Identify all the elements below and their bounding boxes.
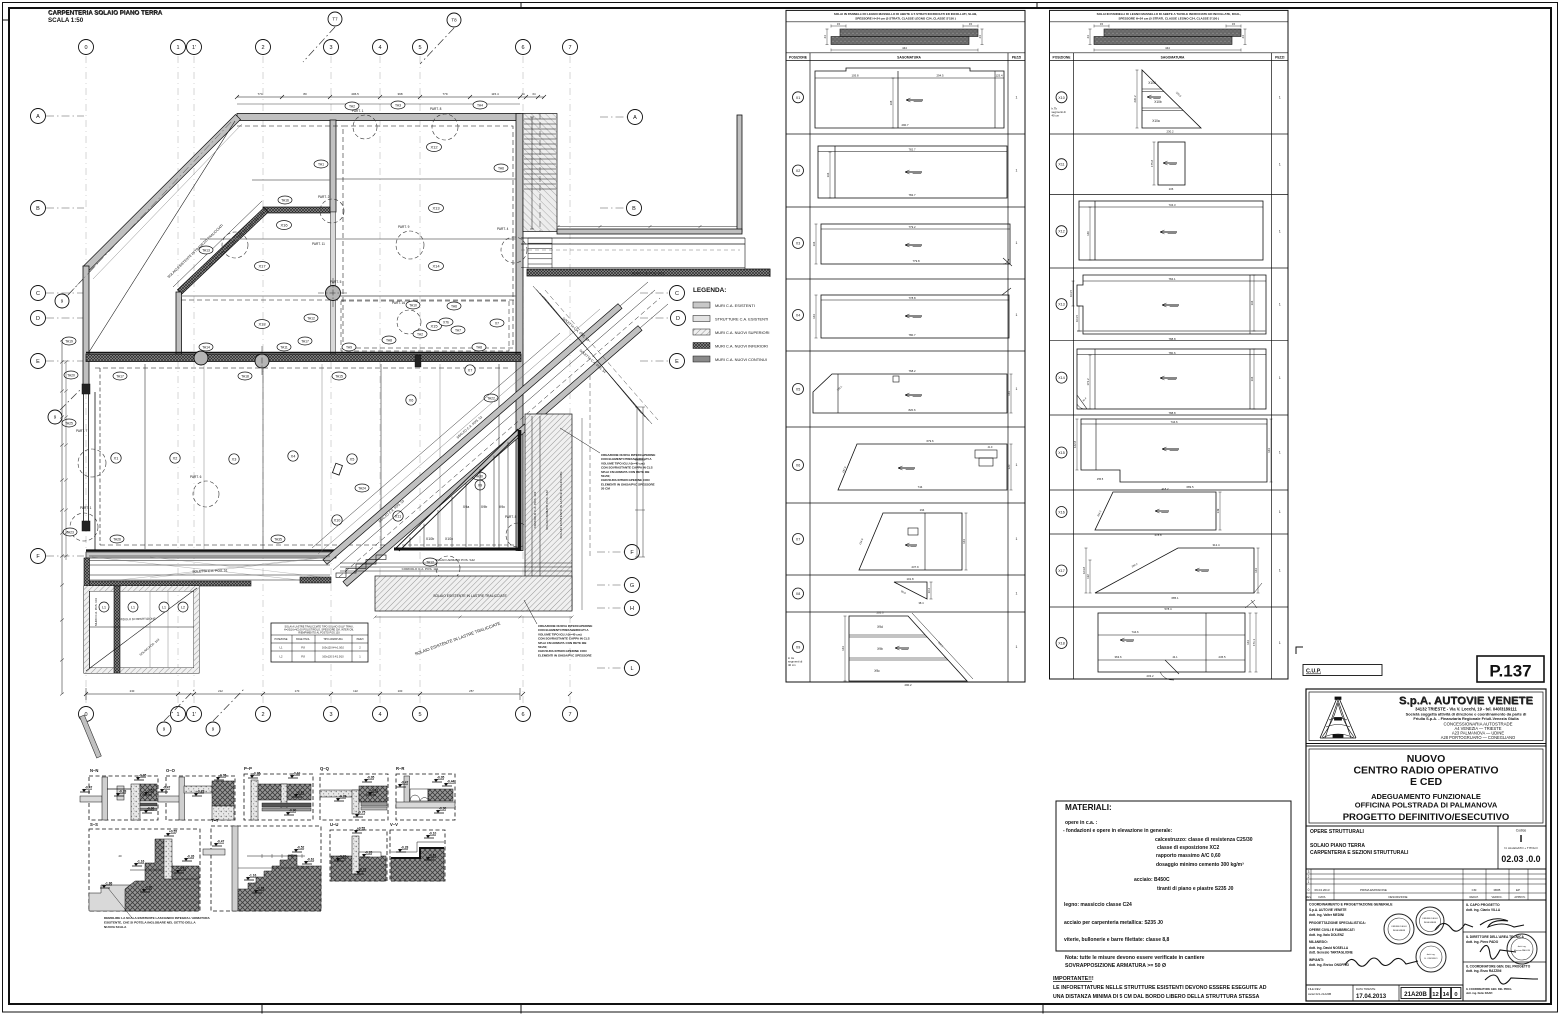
svg-text:TA25: TA25 — [65, 421, 73, 425]
svg-text:160x120 H4+1.0/10: 160x120 H4+1.0/10 — [322, 647, 345, 650]
svg-text:0: 0 — [1308, 888, 1310, 892]
svg-text:1: 1 — [1308, 880, 1310, 884]
svg-text:406.5: 406.5 — [351, 92, 359, 96]
svg-text:Q–Q: Q–Q — [320, 766, 330, 771]
svg-text:1: 1 — [1279, 96, 1281, 100]
svg-text:Maurizio PAULON: Maurizio PAULON — [1514, 949, 1531, 952]
svg-text:X5: X5 — [796, 388, 800, 392]
svg-text:CM: CM — [1472, 888, 1477, 892]
svg-text:SOLAIO PIANO TERRA: SOLAIO PIANO TERRA — [1310, 843, 1365, 849]
svg-text:RIEMPIMENTO AL POSTO POS 103: RIEMPIMENTO AL POSTO POS 103 — [298, 632, 340, 635]
svg-text:H: H — [630, 606, 634, 612]
svg-text:-0.47: -0.47 — [85, 785, 92, 789]
svg-text:774: 774 — [257, 92, 262, 96]
svg-text:tiranti di piano e piastre S23: tiranti di piano e piastre S235 J0 — [1157, 886, 1234, 892]
svg-text:PEZZI: PEZZI — [1275, 55, 1284, 59]
svg-text:7: 7 — [568, 712, 571, 718]
svg-text:1: 1 — [1016, 592, 1018, 596]
svg-text:02.03 .0.0: 02.03 .0.0 — [1501, 854, 1540, 864]
svg-text:X9c: X9c — [499, 505, 505, 509]
svg-text:15: 15 — [837, 22, 841, 26]
svg-text:-0.52: -0.52 — [297, 845, 304, 849]
svg-text:444: 444 — [902, 46, 907, 50]
svg-text:ORDINE DEGLI: ORDINE DEGLI — [1391, 926, 1407, 928]
svg-text:I: I — [1520, 834, 1523, 845]
svg-text:LE INFORETTATURE NELLE STRUTTU: LE INFORETTATURE NELLE STRUTTURE ESISTEN… — [1053, 985, 1267, 991]
svg-text:P.8: P.8 — [301, 655, 305, 659]
svg-text:444: 444 — [1165, 46, 1170, 50]
svg-text:-0.05: -0.05 — [139, 773, 146, 777]
svg-text:-0.26: -0.26 — [187, 854, 194, 858]
svg-text:SOLAIO ARMATO POS. S42: SOLAIO ARMATO POS. S42 — [545, 490, 549, 530]
svg-text:MURI C.A. ESISTENTI: MURI C.A. ESISTENTI — [715, 303, 755, 308]
svg-text:X15: X15 — [430, 323, 438, 328]
svg-text:L1: L1 — [162, 606, 166, 610]
svg-text:+0.55: +0.55 — [357, 826, 365, 830]
svg-text:38.4: 38.4 — [918, 601, 924, 605]
svg-text:-0.10: -0.10 — [429, 831, 436, 835]
svg-text:X10d: X10d — [1148, 81, 1156, 85]
svg-text:TA8: TA8 — [386, 338, 392, 342]
svg-text:149: 149 — [1216, 508, 1220, 513]
svg-text:O–O: O–O — [166, 768, 176, 773]
svg-text:V–V: V–V — [390, 822, 398, 827]
svg-text:1: 1 — [1016, 387, 1018, 391]
svg-text:64: 64 — [532, 92, 536, 96]
svg-text:S.p.A. AUTOVIE VENETE: S.p.A. AUTOVIE VENETE — [1309, 908, 1347, 912]
svg-text:-0.47: -0.47 — [401, 780, 408, 784]
svg-text:171.1: 171.1 — [1252, 639, 1256, 646]
svg-text:TA2: TA2 — [349, 104, 355, 108]
svg-text:-0.28: -0.28 — [401, 845, 408, 849]
svg-text:MURI C.A. NUOVI SUPERIORI: MURI C.A. NUOVI SUPERIORI — [715, 330, 769, 335]
svg-text:164: 164 — [1246, 640, 1250, 645]
svg-text:4: 4 — [378, 45, 381, 51]
svg-text:164: 164 — [812, 241, 816, 246]
svg-text:SAGOMATURA: SAGOMATURA — [1161, 55, 1185, 59]
svg-text:257: 257 — [469, 689, 474, 693]
svg-text:E CED: E CED — [1410, 776, 1443, 788]
svg-text:MDB: MDB — [1494, 888, 1501, 892]
svg-text:PART. 7: PART. 7 — [76, 429, 88, 433]
svg-text:A: A — [633, 115, 637, 121]
svg-text:TA13: TA13 — [202, 248, 210, 252]
svg-text:132: 132 — [1086, 574, 1090, 579]
svg-text:TA20: TA20 — [67, 373, 75, 377]
svg-text:U–U: U–U — [330, 822, 338, 827]
svg-text:205.3: 205.3 — [877, 611, 884, 615]
svg-text:E: E — [36, 359, 40, 365]
svg-text:X10a: X10a — [1152, 119, 1160, 123]
svg-text:784.1: 784.1 — [1169, 277, 1176, 281]
svg-text:-0.28: -0.28 — [197, 789, 204, 793]
svg-text:203.2: 203.2 — [1147, 674, 1154, 678]
svg-text:15: 15 — [969, 22, 973, 26]
svg-text:X18: X18 — [1058, 642, 1064, 646]
svg-text:E. ONOFRIO: E. ONOFRIO — [1425, 958, 1438, 960]
svg-text:2: 2 — [1308, 875, 1310, 879]
svg-text:G: G — [630, 583, 634, 589]
svg-text:1: 1 — [1016, 463, 1018, 467]
svg-text:X10b: X10b — [1154, 100, 1162, 104]
svg-text:1: 1 — [1279, 451, 1281, 455]
svg-text:PROGETTAZIONE SPECIALISTICA:: PROGETTAZIONE SPECIALISTICA: — [1309, 921, 1366, 925]
svg-text:788.8: 788.8 — [1169, 411, 1176, 415]
svg-text:FILE REV.: FILE REV. — [1308, 987, 1321, 991]
svg-text:DESCRIZIONE: DESCRIZIONE — [1388, 895, 1407, 899]
svg-text:104.5: 104.5 — [1069, 290, 1073, 297]
svg-text:TA23: TA23 — [66, 530, 74, 534]
svg-text:CARPENTERIA SOLAIO PIANO TERRA: CARPENTERIA SOLAIO PIANO TERRA — [48, 10, 163, 17]
svg-text:24: 24 — [823, 35, 827, 39]
svg-text:PART. 11: PART. 11 — [312, 242, 325, 246]
svg-text:X9b: X9b — [877, 647, 883, 651]
svg-text:X7b: X7b — [443, 320, 449, 324]
svg-text:398: 398 — [397, 92, 402, 96]
svg-text:TA4: TA4 — [477, 103, 483, 107]
svg-text:BASE HSOL: BASE HSOL — [296, 638, 310, 641]
svg-text:COORDINAMENTO E PROGETTAZIONE: COORDINAMENTO E PROGETTAZIONE GENERALE — [1309, 903, 1393, 907]
svg-text:NUOVO: NUOVO — [1407, 753, 1446, 765]
svg-text:X11: X11 — [395, 515, 401, 519]
svg-text:dott. ing. Enzo RAZZINI: dott. ing. Enzo RAZZINI — [1466, 969, 1502, 973]
svg-text:Nota: tutte le misure devono e: Nota: tutte le misure devono essere veri… — [1065, 955, 1205, 961]
svg-text:780.6: 780.6 — [1169, 351, 1176, 355]
svg-text:164: 164 — [962, 539, 966, 544]
svg-text:679.6: 679.6 — [927, 439, 934, 443]
svg-text:44: 44 — [521, 92, 525, 96]
svg-text:5: 5 — [418, 45, 421, 51]
svg-text:4: 4 — [378, 712, 381, 718]
svg-text:PROGETTO DEFINITIVO/ESECUTIVO: PROGETTO DEFINITIVO/ESECUTIVO — [1343, 812, 1510, 823]
svg-text:MURO C.A. POS. 104: MURO C.A. POS. 104 — [94, 598, 98, 626]
svg-text:L1: L1 — [131, 606, 135, 610]
svg-text:POSIZIONE: POSIZIONE — [789, 55, 808, 59]
svg-text:1': 1' — [192, 45, 196, 51]
svg-text:09.04.2013: 09.04.2013 — [1314, 888, 1329, 892]
svg-text:N–N: N–N — [90, 768, 98, 773]
svg-text:DATA TRIESTE: DATA TRIESTE — [1356, 987, 1376, 991]
svg-text:744.6: 744.6 — [1171, 420, 1178, 424]
svg-text:INGEGNERI: INGEGNERI — [1393, 930, 1406, 932]
svg-text:TA30: TA30 — [475, 474, 483, 478]
svg-text:788.8: 788.8 — [1169, 337, 1176, 341]
svg-text:N. ALLEGATO + TITOLO: N. ALLEGATO + TITOLO — [1504, 846, 1538, 850]
svg-text:TA19: TA19 — [65, 339, 73, 343]
svg-text:12: 12 — [1432, 992, 1438, 998]
svg-text:dott. ing. David NOSELLA: dott. ing. David NOSELLA — [1309, 946, 1349, 950]
svg-text:237.9: 237.9 — [912, 565, 919, 569]
svg-text:TA1: TA1 — [318, 162, 324, 166]
svg-text:689.5: 689.5 — [1187, 485, 1194, 489]
svg-text:calcestruzzo: classe di resis: calcestruzzo: classe di resistenza C25/3… — [1155, 837, 1253, 843]
svg-text:3: 3 — [329, 712, 332, 718]
svg-text:X10: X10 — [334, 519, 341, 523]
svg-text:P.8: P.8 — [301, 646, 305, 650]
svg-text:X9: X9 — [796, 646, 800, 650]
svg-text:SOLAIO ARMATO POS. S42: SOLAIO ARMATO POS. S42 — [435, 558, 475, 562]
svg-text:P–P: P–P — [244, 766, 252, 771]
svg-text:R–R: R–R — [396, 766, 404, 771]
svg-text:REV.: REV. — [1305, 895, 1311, 899]
svg-text:PART. 4: PART. 4 — [497, 227, 509, 231]
svg-text:TA9: TA9 — [346, 345, 352, 349]
svg-text:105.8: 105.8 — [852, 74, 859, 78]
svg-text:779: 779 — [442, 92, 447, 96]
svg-text:1: 1 — [1279, 302, 1281, 306]
svg-text:TA14: TA14 — [202, 345, 210, 349]
svg-text:104.5: 104.5 — [1075, 315, 1079, 322]
svg-text:X7: X7 — [495, 321, 499, 325]
svg-text:175.8: 175.8 — [1150, 160, 1154, 167]
svg-text:-1.16: -1.16 — [249, 873, 256, 877]
svg-text:X8: X8 — [796, 592, 800, 596]
svg-text:1: 1 — [1016, 313, 1018, 317]
svg-text:TA10: TA10 — [409, 303, 417, 307]
svg-text:40 cm: 40 cm — [788, 663, 796, 667]
svg-text:CORDOLO C.A. POS. 101: CORDOLO C.A. POS. 101 — [402, 567, 439, 571]
svg-text:TA24: TA24 — [358, 486, 366, 490]
svg-text:15: 15 — [1232, 22, 1236, 26]
svg-text:TA6: TA6 — [451, 304, 457, 308]
svg-text:dott. ing. Delio RAZZI: dott. ing. Delio RAZZI — [1466, 991, 1493, 995]
svg-text:782.7: 782.7 — [909, 148, 916, 152]
svg-text:L: L — [630, 666, 633, 672]
svg-text:24: 24 — [978, 35, 982, 39]
svg-text:dott. Genesio TARTAGLIONE: dott. Genesio TARTAGLIONE — [1309, 951, 1353, 955]
svg-text:INGEGNERI: INGEGNERI — [1424, 922, 1437, 924]
svg-text:-0.05: -0.05 — [219, 773, 226, 777]
svg-text:dott. ing. Clanio VILLA: dott. ing. Clanio VILLA — [1466, 908, 1501, 912]
svg-text:X13: X13 — [432, 205, 440, 210]
svg-text:viterie, bullonerie e barre fi: viterie, bullonerie e barre filettate: c… — [1064, 937, 1170, 943]
svg-text:782.7: 782.7 — [909, 193, 916, 197]
svg-text:L1: L1 — [102, 606, 106, 610]
svg-text:768.2: 768.2 — [909, 369, 916, 373]
svg-text:170: 170 — [295, 689, 300, 693]
svg-text:E: E — [675, 359, 679, 365]
svg-text:164: 164 — [1254, 568, 1258, 573]
svg-text:D: D — [676, 316, 680, 322]
svg-text:744: 744 — [918, 485, 923, 489]
svg-text:779.2: 779.2 — [909, 225, 916, 229]
svg-text:20 CM: 20 CM — [601, 487, 610, 491]
svg-text:CARPENTERIA E SEZIONI STRUTTUR: CARPENTERIA E SEZIONI STRUTTURALI — [1310, 850, 1409, 856]
svg-text:173.2: 173.2 — [1086, 378, 1090, 385]
svg-text:125.4: 125.4 — [996, 74, 1003, 78]
svg-text:PART. 6: PART. 6 — [190, 475, 202, 479]
svg-text:T–T: T–T — [211, 818, 219, 823]
svg-text:X14: X14 — [432, 263, 440, 268]
svg-text:1: 1 — [1016, 169, 1018, 173]
svg-text:778.8: 778.8 — [909, 296, 916, 300]
svg-text:opere in c.a. :: opere in c.a. : — [1065, 820, 1098, 826]
svg-text:1: 1 — [1016, 96, 1018, 100]
svg-text:-0.10: -0.10 — [293, 771, 300, 775]
svg-text:P.137: P.137 — [1489, 662, 1531, 681]
svg-text:dott. ing. Italo DOLENZ: dott. ing. Italo DOLENZ — [1309, 933, 1344, 937]
svg-text:Codice: Codice — [1516, 829, 1527, 833]
svg-text:1: 1 — [1279, 229, 1281, 233]
svg-text:rapporto massimo A/C 0,60: rapporto massimo A/C 0,60 — [1156, 853, 1221, 859]
svg-text:STRUTTURE C.A. ESISTENTI: STRUTTURE C.A. ESISTENTI — [715, 316, 768, 321]
svg-text:S–S: S–S — [90, 822, 98, 827]
svg-text:X6: X6 — [796, 464, 800, 468]
svg-text:-0.90: -0.90 — [439, 806, 446, 810]
svg-text:-0.44: -0.44 — [447, 779, 454, 783]
svg-text:21A20B: 21A20B — [1404, 991, 1427, 998]
svg-text:290.2: 290.2 — [905, 683, 912, 687]
svg-text:dott. ing. Piero PADO: dott. ing. Piero PADO — [1466, 940, 1499, 944]
svg-text:MATERIALI:: MATERIALI: — [1065, 803, 1112, 812]
svg-text:-0.73: -0.73 — [359, 867, 366, 871]
svg-text:MURO C.A. POS. W13: MURO C.A. POS. W13 — [632, 272, 665, 276]
svg-text:230: 230 — [130, 689, 135, 693]
svg-text:1: 1 — [1279, 376, 1281, 380]
svg-text:dosaggio minimo cemento 300 kg: dosaggio minimo cemento 300 kg/m³ — [1156, 862, 1244, 868]
svg-text:X7: X7 — [468, 369, 473, 373]
svg-text:168: 168 — [889, 100, 893, 105]
svg-text:6: 6 — [521, 712, 524, 718]
svg-text:TA22: TA22 — [487, 396, 495, 400]
svg-text:230.2: 230.2 — [1167, 130, 1174, 134]
svg-text:-0.75: -0.75 — [358, 810, 365, 814]
svg-text:SOVRAPPOSIZIONE ARMATURA >= 50: SOVRAPPOSIZIONE ARMATURA >= 50 Ø — [1065, 963, 1166, 969]
svg-text:780.7: 780.7 — [909, 333, 916, 337]
svg-text:X13: X13 — [1058, 303, 1064, 307]
svg-text:212: 212 — [218, 689, 223, 693]
svg-text:IL COORDINATORE GEN. DEL PROG.: IL COORDINATORE GEN. DEL PROG. — [1466, 987, 1512, 991]
svg-text:6: 6 — [521, 45, 524, 51]
svg-text:X10: X10 — [1058, 96, 1064, 100]
svg-text:X9d: X9d — [877, 625, 883, 629]
svg-text:-1.86: -1.86 — [105, 881, 112, 885]
svg-text:OPERE CIVILI E FABBRICATI: OPERE CIVILI E FABBRICATI — [1309, 928, 1355, 932]
svg-text:1: 1 — [1279, 510, 1281, 514]
svg-text:3: 3 — [1308, 870, 1310, 874]
svg-text:T8: T8 — [451, 18, 457, 23]
svg-text:X1: X1 — [114, 457, 119, 461]
svg-text:dott. ing.: dott. ing. — [1427, 953, 1436, 956]
svg-text:X7: X7 — [796, 538, 800, 542]
svg-text:164: 164 — [826, 172, 830, 177]
svg-text:TA7: TA7 — [455, 328, 461, 332]
svg-text:X12: X12 — [430, 144, 438, 149]
svg-text:MILANESIO:: MILANESIO: — [1309, 940, 1328, 944]
svg-text:ELEMENTI IN GHISA/PVC SPESSORE: ELEMENTI IN GHISA/PVC SPESSORE — [538, 653, 592, 657]
svg-text:-0.28: -0.28 — [339, 794, 346, 798]
svg-text:40 cm: 40 cm — [1052, 114, 1060, 118]
svg-text:-0.33: -0.33 — [339, 854, 346, 858]
svg-text:X12: X12 — [1058, 230, 1064, 234]
svg-text:7: 7 — [568, 45, 571, 51]
svg-text:3: 3 — [329, 45, 332, 51]
svg-text:X9c: X9c — [874, 669, 880, 673]
svg-text:TA6: TA6 — [498, 166, 504, 170]
svg-text:2: 2 — [261, 712, 264, 718]
svg-text:X1: X1 — [796, 96, 800, 100]
svg-text:17.04.2013: 17.04.2013 — [1356, 994, 1387, 1000]
svg-text:164: 164 — [1267, 448, 1271, 453]
svg-text:X16: X16 — [280, 222, 288, 227]
svg-text:363.6: 363.6 — [1115, 655, 1122, 659]
svg-text:MURI C.A. NUOVI CONTINUI: MURI C.A. NUOVI CONTINUI — [715, 357, 767, 362]
svg-text:X2: X2 — [796, 169, 800, 173]
svg-text:X5: X5 — [350, 458, 355, 462]
svg-text:TA12: TA12 — [307, 316, 315, 320]
svg-text:155.5: 155.5 — [1097, 477, 1104, 481]
svg-text:legno: massiccio classe C24: legno: massiccio classe C24 — [1064, 902, 1132, 908]
svg-text:X10b: X10b — [426, 537, 434, 541]
svg-text:-2.05: -2.05 — [145, 885, 152, 889]
svg-text:0: 0 — [84, 45, 87, 51]
svg-text:418.2: 418.2 — [1162, 487, 1169, 491]
svg-text:B: B — [632, 206, 636, 212]
svg-text:X4: X4 — [291, 455, 296, 459]
svg-text:dott. ing. Enrico ONOFRIO: dott. ing. Enrico ONOFRIO — [1309, 963, 1350, 967]
svg-text:1: 1 — [176, 45, 179, 51]
svg-text:245.5: 245.5 — [1219, 655, 1226, 659]
svg-text:115.4: 115.4 — [491, 92, 499, 96]
svg-text:-0.47: -0.47 — [217, 839, 224, 843]
svg-text:X14: X14 — [1058, 376, 1064, 380]
svg-text:B: B — [36, 206, 40, 212]
svg-text:SPESSORE H=24 cm (5 STRATI, CL: SPESSORE H=24 cm (5 STRATI, CLASSE LEGNO… — [1118, 16, 1219, 20]
svg-text:DATA: DATA — [1318, 895, 1325, 899]
svg-text:REDAT.: REDAT. — [1469, 895, 1478, 899]
svg-text:120: 120 — [1007, 464, 1011, 469]
svg-text:dott. ing.: dott. ing. — [1518, 945, 1527, 948]
svg-text:LEGENDA:: LEGENDA: — [693, 287, 726, 294]
svg-text:acciaio per carpenteria metall: acciaio per carpenteria metallica: S235 … — [1064, 920, 1163, 926]
svg-text:312.4: 312.4 — [1213, 543, 1220, 547]
svg-text:478.8: 478.8 — [1155, 533, 1162, 537]
svg-text:-0.61: -0.61 — [297, 790, 304, 794]
svg-text:X15: X15 — [1058, 451, 1064, 455]
svg-text:41.9: 41.9 — [988, 446, 993, 449]
svg-text:X17: X17 — [258, 263, 266, 268]
svg-text:PART. 16: PART. 16 — [392, 301, 405, 305]
svg-text:80: 80 — [303, 92, 307, 96]
svg-text:cartel 021-21A20B: cartel 021-21A20B — [1308, 992, 1331, 996]
svg-text:PART. 5: PART. 5 — [330, 280, 342, 284]
svg-text:CORDOLO C.A. POS. 102: CORDOLO C.A. POS. 102 — [533, 491, 537, 528]
svg-text:TA15: TA15 — [335, 374, 343, 378]
svg-text:-0.47: -0.47 — [163, 785, 170, 789]
svg-text:TA8: TA8 — [476, 345, 482, 349]
svg-text:OFFICINA POLSTRADA DI PALMANOV: OFFICINA POLSTRADA DI PALMANOVA — [1355, 801, 1498, 810]
svg-text:24: 24 — [1241, 35, 1245, 39]
svg-text:D: D — [36, 316, 40, 322]
svg-text:290.7: 290.7 — [902, 123, 909, 127]
svg-text:106: 106 — [1169, 187, 1174, 191]
svg-text:2: 2 — [261, 45, 264, 51]
svg-text:-0.28: -0.28 — [119, 789, 126, 793]
svg-text:NUOVA SCALA: NUOVA SCALA — [104, 925, 127, 929]
svg-text:CENTRO RADIO OPERATIVO: CENTRO RADIO OPERATIVO — [1353, 765, 1498, 777]
svg-text:+0.55: +0.55 — [169, 829, 177, 833]
svg-text:X2: X2 — [173, 457, 178, 461]
svg-text:OPERE STRUTTURALI: OPERE STRUTTURALI — [1310, 829, 1365, 835]
svg-text:classe di esposizione XC2: classe di esposizione XC2 — [1157, 845, 1219, 851]
svg-text:164: 164 — [841, 646, 845, 651]
svg-text:-1.52: -1.52 — [147, 788, 154, 792]
svg-text:TA2: TA2 — [417, 332, 423, 336]
svg-text:SOLAIO ESISTENTE IN LASTRE TRA: SOLAIO ESISTENTE IN LASTRE TRALICCIATE — [433, 594, 507, 598]
svg-text:-2.05: -2.05 — [257, 886, 264, 890]
svg-text:X18: X18 — [258, 321, 266, 326]
svg-text:1: 1 — [1279, 569, 1281, 573]
